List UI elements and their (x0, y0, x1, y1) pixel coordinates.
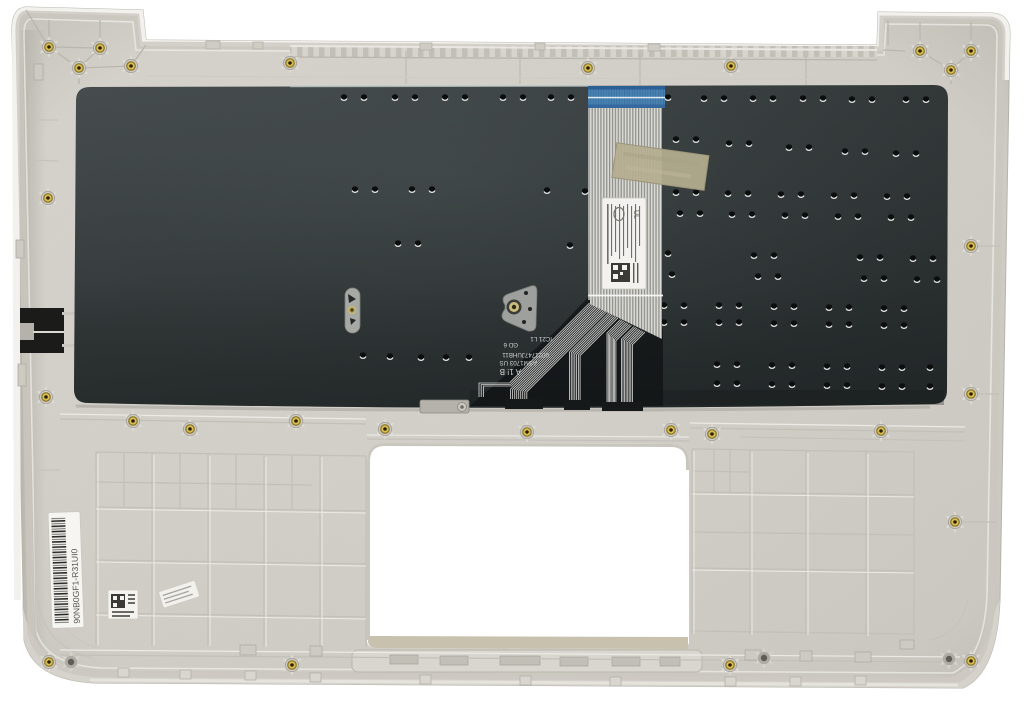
svg-text:IC21 L1: IC21 L1 (530, 335, 552, 342)
svg-text:ASM1703 US: ASM1703 US (500, 359, 538, 366)
svg-text:GD 6: GD 6 (503, 341, 518, 348)
svg-text:0021747JUHB11: 0021747JUHB11 (502, 351, 549, 358)
svg-text:UL: UL (632, 210, 639, 219)
